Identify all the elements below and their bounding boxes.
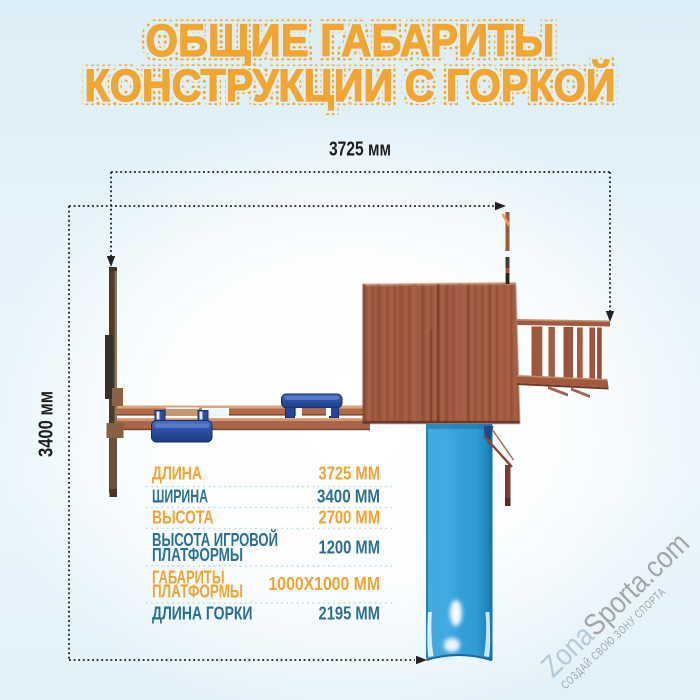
svg-text:ДЛИНА ГОРКИ: ДЛИНА ГОРКИ [152,603,253,624]
svg-text:3400 мм: 3400 мм [35,391,58,457]
svg-text:2700 ММ: 2700 ММ [319,507,381,528]
svg-text:ВЫСОТА: ВЫСОТА [152,507,214,528]
svg-text:ПЛАТФОРМЫ: ПЛАТФОРМЫ [152,544,243,565]
svg-text:2195 ММ: 2195 ММ [319,603,381,624]
svg-text:ШИРИНА: ШИРИНА [152,486,208,507]
svg-text:1000Х1000 ММ: 1000Х1000 ММ [269,573,381,594]
svg-text:3400 ММ: 3400 ММ [317,486,380,507]
svg-text:ОБЩИЕ ГАБАРИТЫ: ОБЩИЕ ГАБАРИТЫ [146,15,555,66]
svg-text:3725 ММ: 3725 ММ [319,463,381,484]
svg-text:КОНСТРУКЦИИ С ГОРКОЙ: КОНСТРУКЦИИ С ГОРКОЙ [85,60,616,111]
svg-text:3725 мм: 3725 мм [329,138,391,161]
svg-text:1200 ММ: 1200 ММ [319,537,381,558]
svg-text:ПЛАТФОРМЫ: ПЛАТФОРМЫ [152,581,243,602]
svg-text:ДЛИНА: ДЛИНА [152,463,202,484]
